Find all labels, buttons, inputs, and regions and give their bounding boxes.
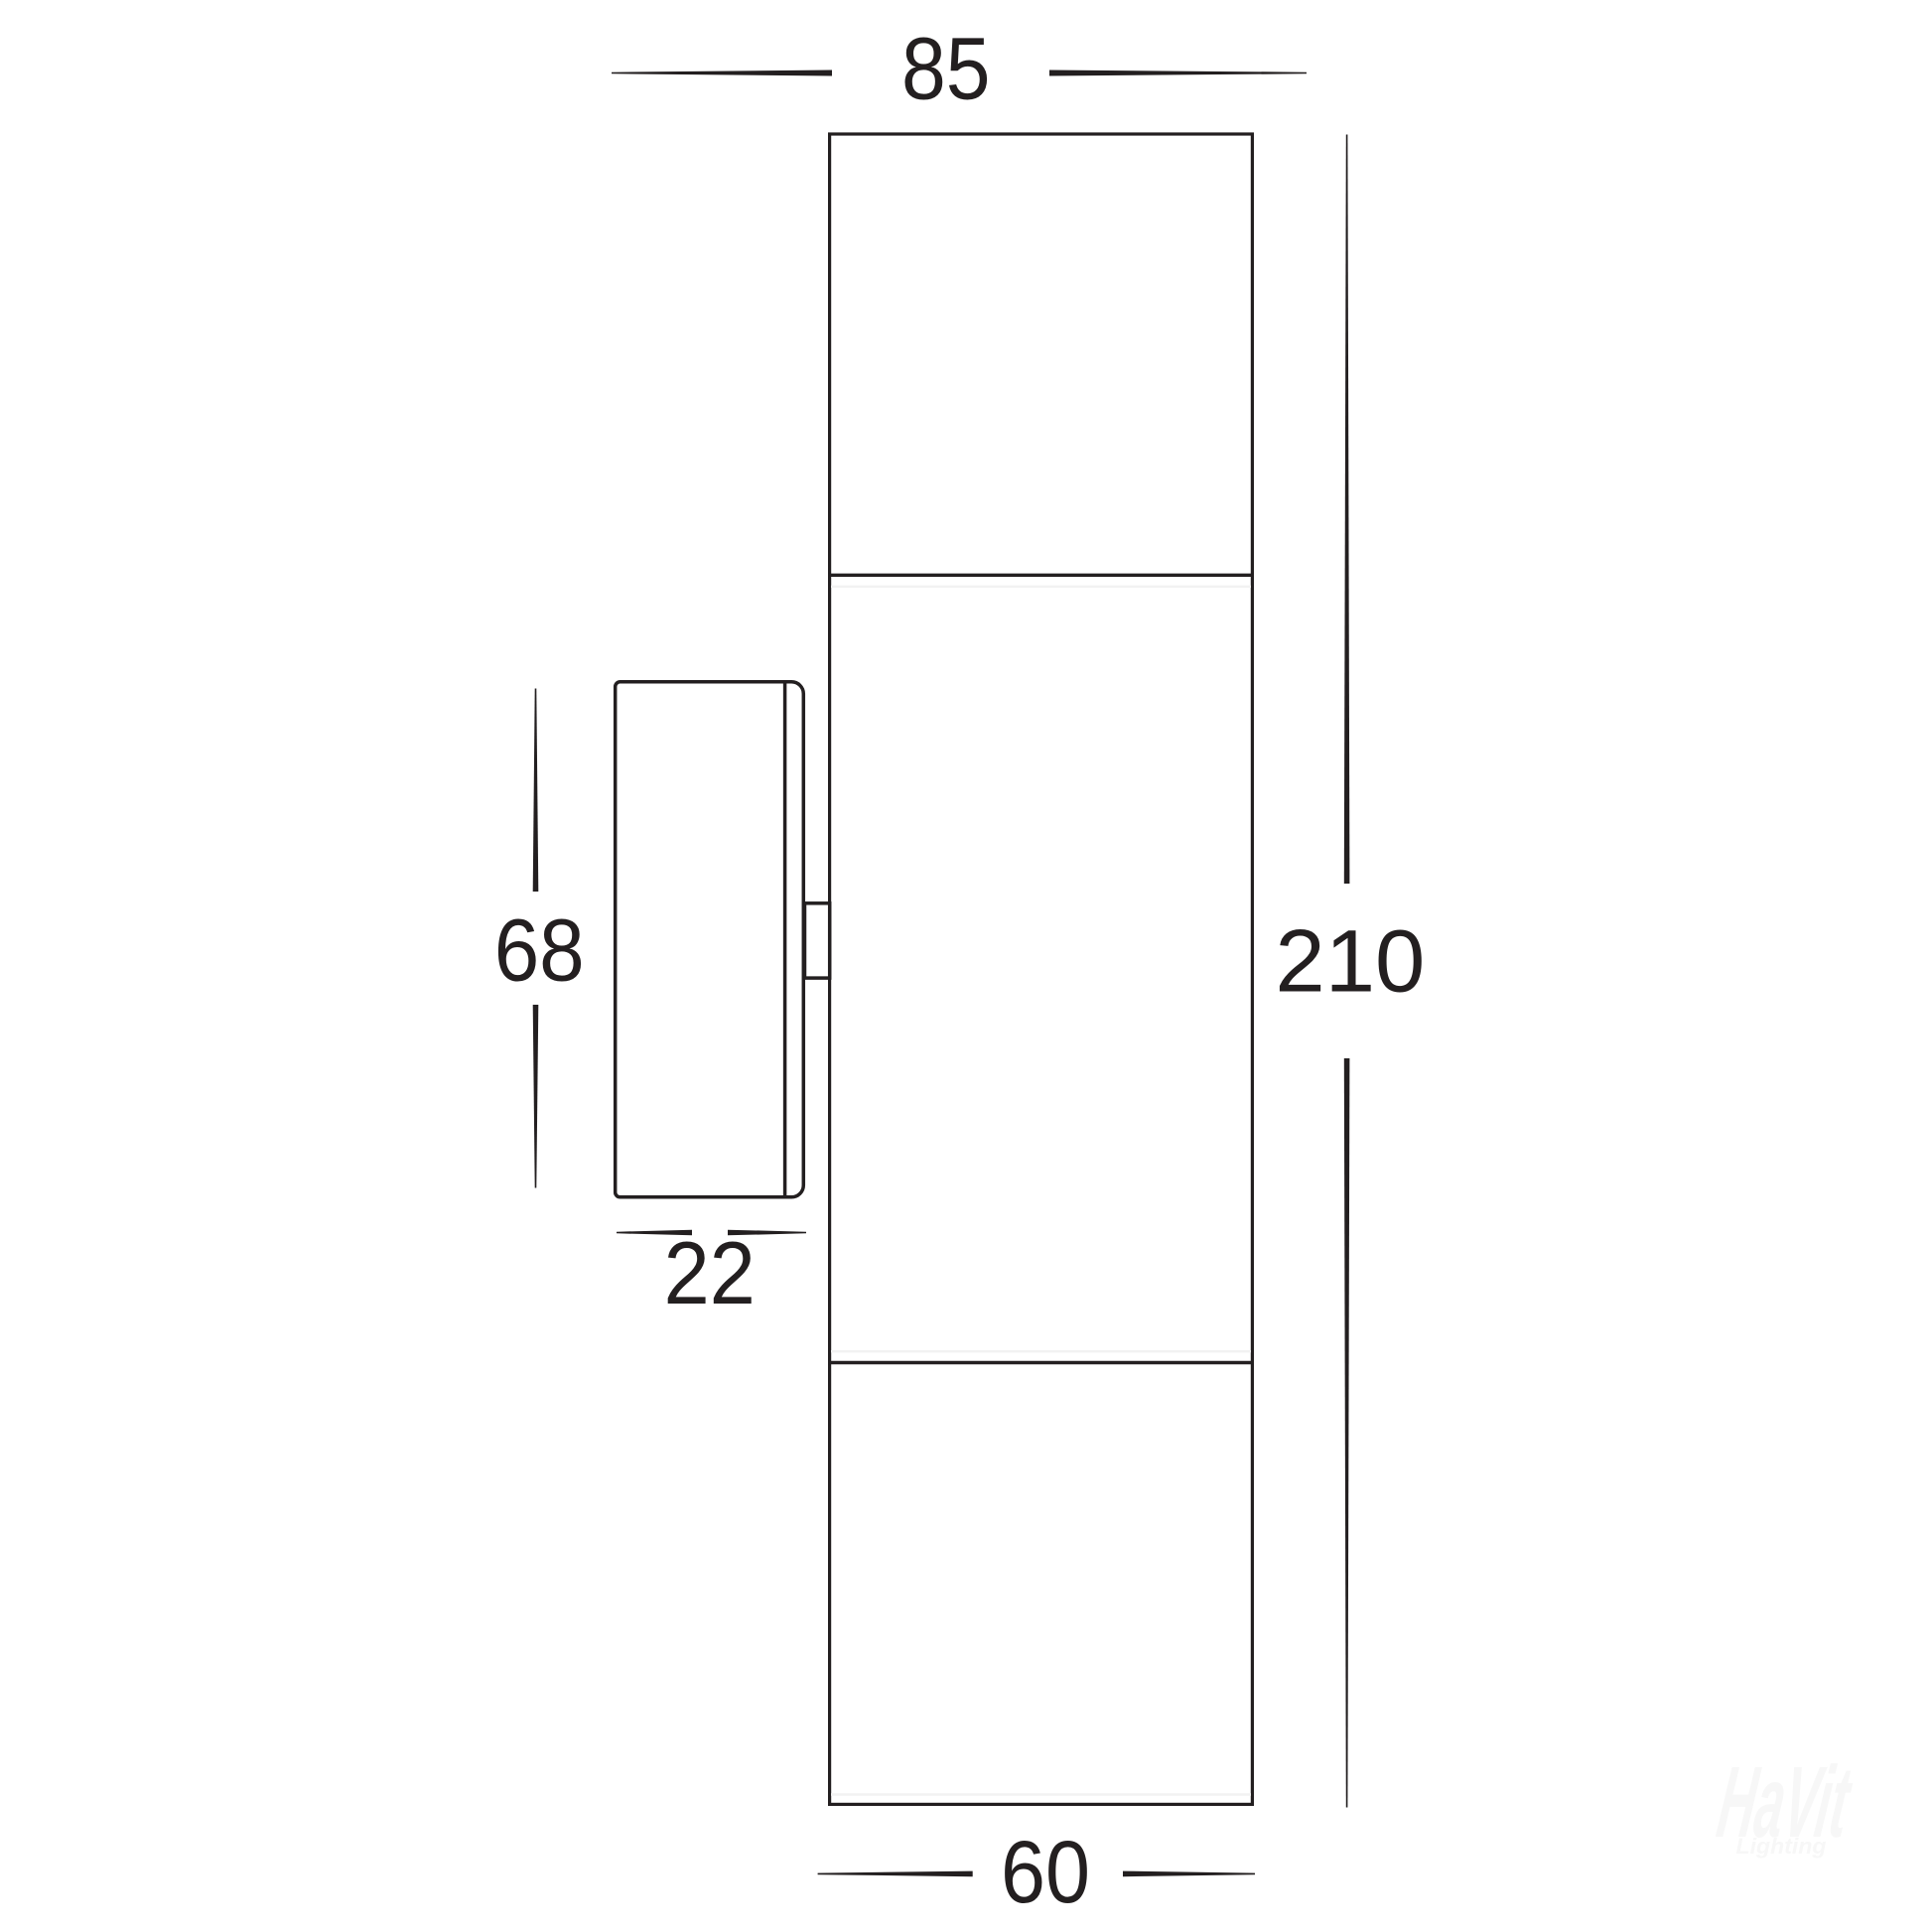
svg-text:85: 85 <box>901 19 991 118</box>
svg-text:Lighting: Lighting <box>1736 1834 1828 1859</box>
svg-text:22: 22 <box>663 1223 756 1322</box>
svg-text:210: 210 <box>1275 911 1425 1011</box>
svg-text:60: 60 <box>1001 1822 1090 1921</box>
svg-text:68: 68 <box>494 900 585 1000</box>
